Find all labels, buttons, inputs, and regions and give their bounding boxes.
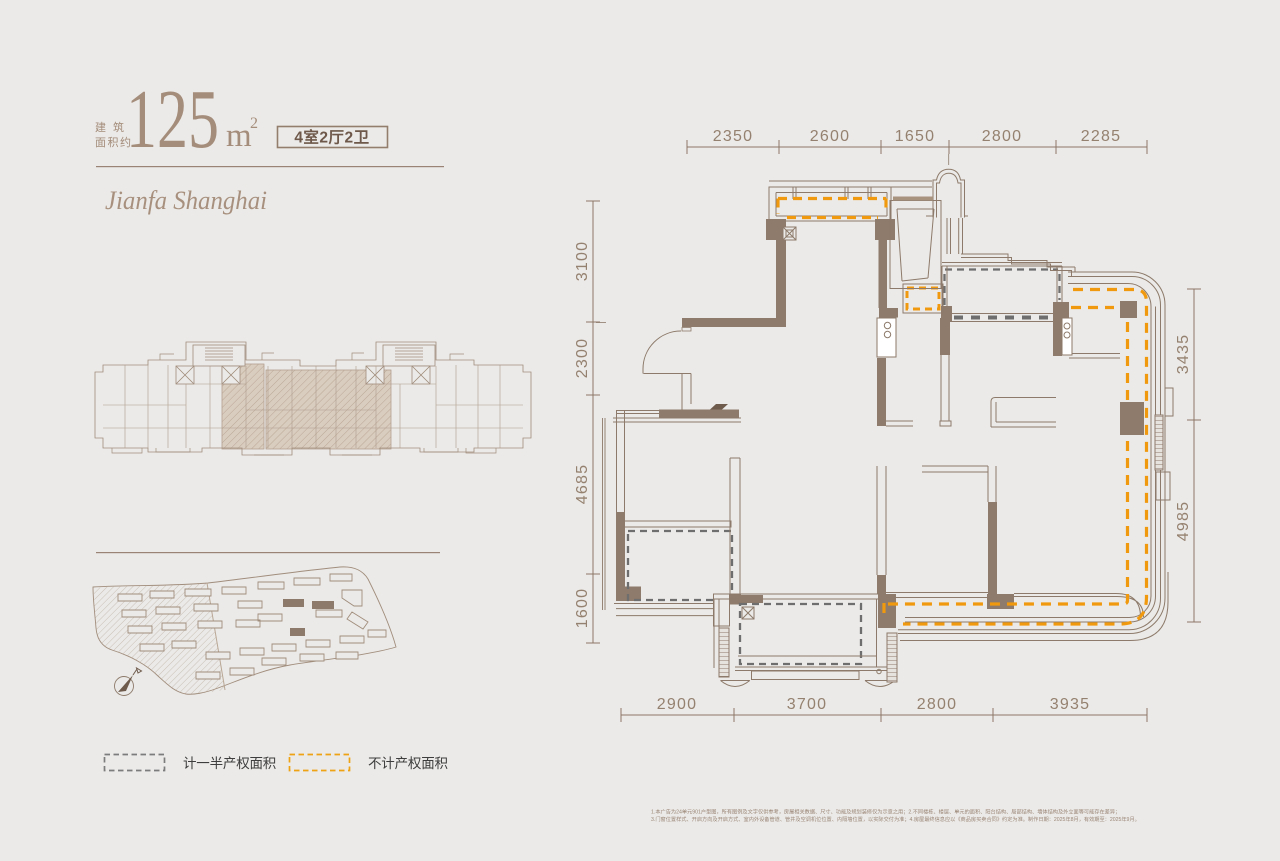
svg-text:2900: 2900 bbox=[657, 696, 697, 713]
svg-text:2600: 2600 bbox=[810, 128, 850, 145]
svg-text:Jianfa Shanghai: Jianfa Shanghai bbox=[105, 186, 267, 215]
svg-text:3100: 3100 bbox=[574, 241, 591, 281]
svg-text:3.门窗位置样式、开启方向及开启方式、室内外设备管道、管井及: 3.门窗位置样式、开启方向及开启方式、室内外设备管道、管井及空调机位位置、内隔墙… bbox=[651, 815, 1140, 823]
svg-text:2: 2 bbox=[250, 115, 258, 132]
svg-text:2350: 2350 bbox=[713, 128, 753, 145]
svg-text:3935: 3935 bbox=[1050, 696, 1090, 713]
svg-text:2285: 2285 bbox=[1081, 128, 1121, 145]
svg-text:m: m bbox=[226, 118, 252, 154]
svg-text:3435: 3435 bbox=[1175, 334, 1192, 374]
svg-text:2800: 2800 bbox=[917, 696, 957, 713]
svg-text:3700: 3700 bbox=[787, 696, 827, 713]
svg-text:4985: 4985 bbox=[1175, 501, 1192, 541]
svg-text:计一半产权面积: 计一半产权面积 bbox=[183, 755, 276, 771]
svg-text:1650: 1650 bbox=[895, 128, 935, 145]
svg-text:1.本广告为24单元901户型图，所有图例及文字仅供参考，房: 1.本广告为24单元901户型图，所有图例及文字仅供参考，房屋相关数据、尺寸、功… bbox=[651, 808, 1120, 816]
svg-text:不计产权面积: 不计产权面积 bbox=[368, 755, 448, 771]
svg-text:2800: 2800 bbox=[982, 128, 1022, 145]
svg-text:4室2厅2卫: 4室2厅2卫 bbox=[294, 128, 369, 147]
svg-text:4685: 4685 bbox=[574, 464, 591, 504]
svg-text:1600: 1600 bbox=[574, 588, 591, 628]
svg-text:125: 125 bbox=[126, 73, 219, 166]
svg-text:2300: 2300 bbox=[574, 338, 591, 378]
